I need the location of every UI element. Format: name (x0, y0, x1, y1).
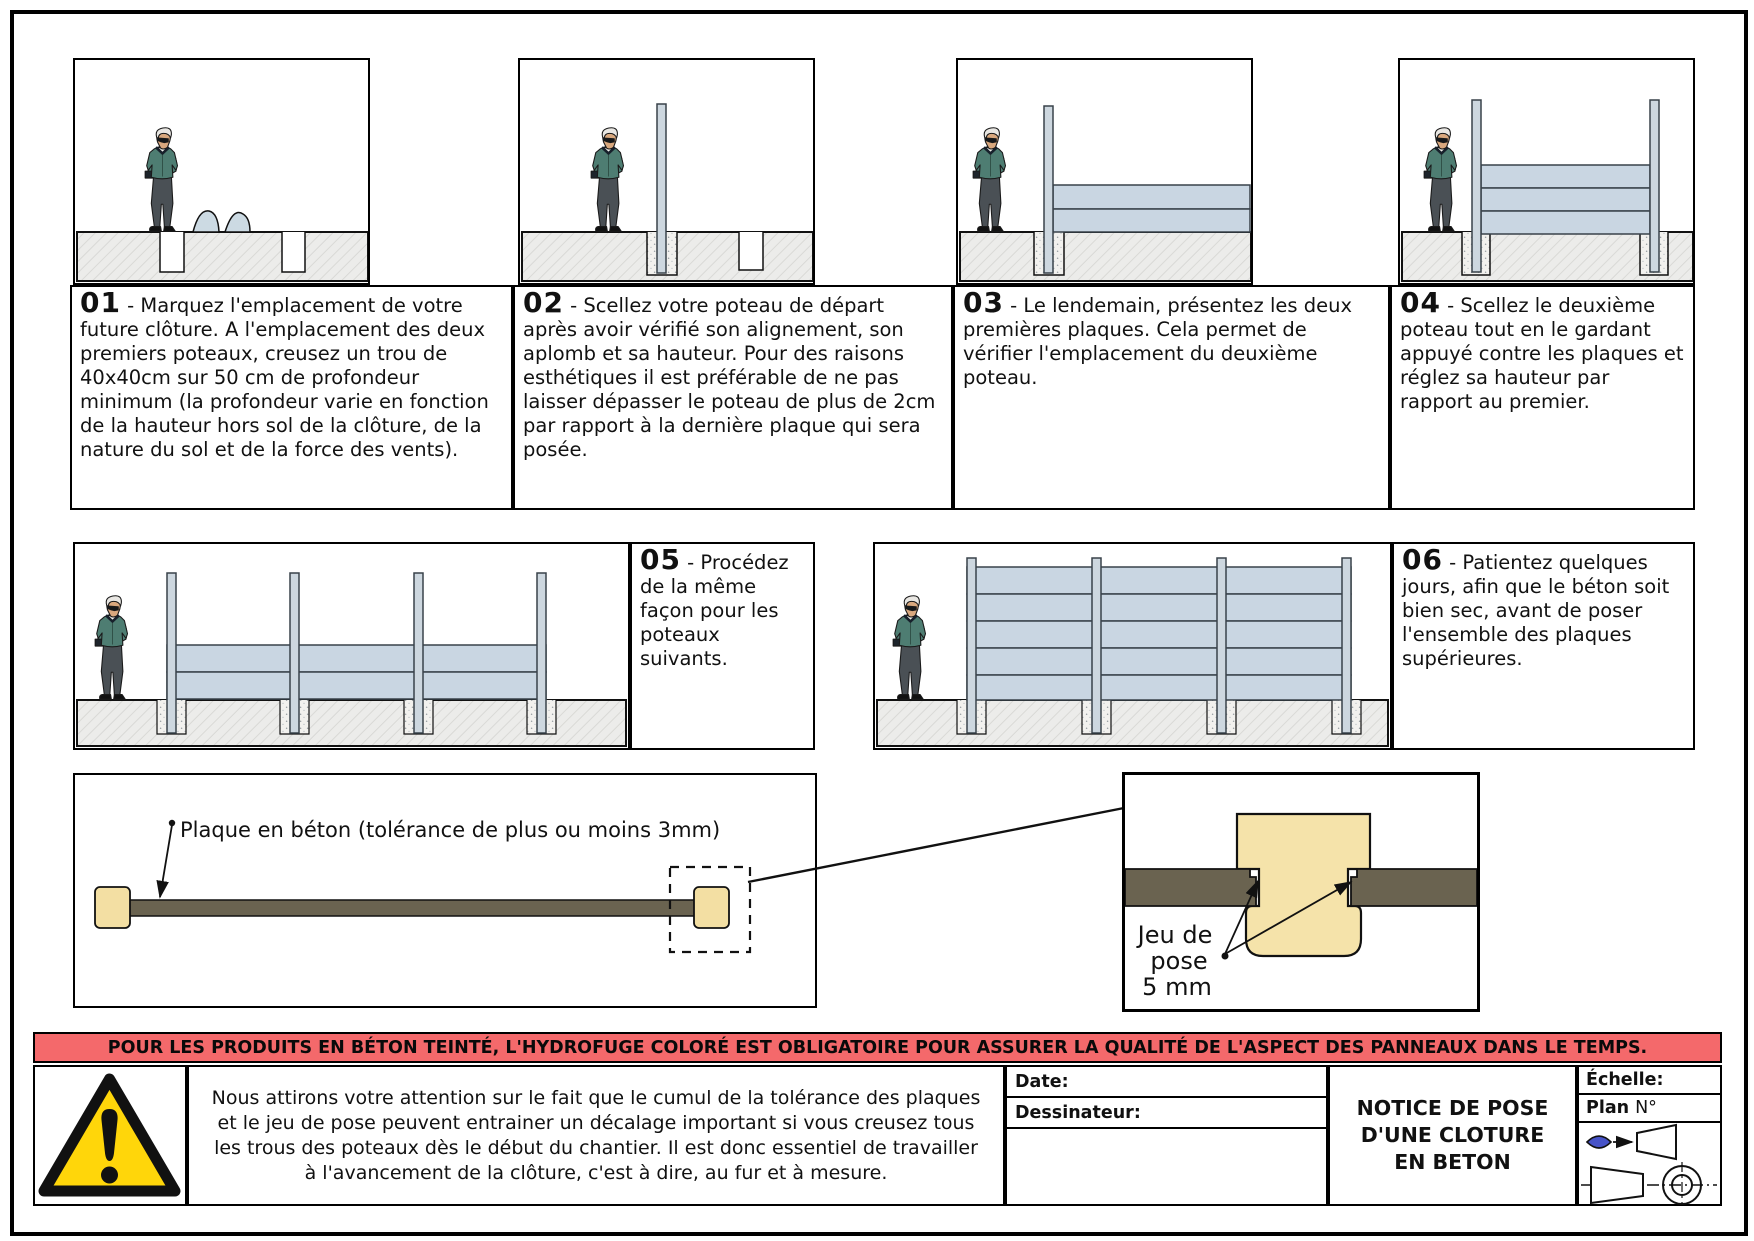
scale-plan-box: Échelle: Plan N° (1577, 1065, 1722, 1206)
plan-number-field: Plan N° (1579, 1095, 1720, 1123)
concrete-plate (967, 594, 1351, 621)
dirt-mound (225, 212, 250, 232)
step-03-illustration (956, 58, 1253, 285)
step-number: 03 (963, 286, 1004, 319)
concrete-plate (1481, 165, 1650, 188)
notice-page: 01 - Marquez l'emplacement de votre futu… (0, 0, 1754, 1241)
scale-field: Échelle: (1579, 1067, 1720, 1095)
fence-post (1217, 558, 1226, 733)
plate-plan-view: Plaque en béton (tolérance de plus ou mo… (73, 773, 817, 1008)
date-label: Date: (1015, 1072, 1069, 1092)
step-01-illustration (73, 58, 370, 285)
plan-label: Plan (1586, 1098, 1629, 1118)
fence-post (1472, 100, 1481, 272)
hydrofuge-warning-banner: POUR LES PRODUITS EN BÉTON TEINTÉ, L'HYD… (33, 1032, 1722, 1063)
drafter-label: Dessinateur: (1015, 1103, 1141, 1123)
joint-detail-view: Jeu de pose 5 mm (1122, 772, 1480, 1012)
concrete-plate (1053, 209, 1250, 232)
plate-label: Plaque en béton (tolérance de plus ou mo… (180, 818, 720, 842)
step-instruction: - Marquez l'emplacement de votre future … (80, 294, 489, 461)
document-title: NOTICE DE POSE D'UNE CLOTURE EN BETON (1357, 1095, 1549, 1176)
concrete-plate (967, 675, 1351, 700)
step-05-text: 05 - Procédez de la même façon pour les … (630, 542, 815, 750)
tolerance-notice-text: Nous attirons votre attention sur le fai… (207, 1086, 985, 1186)
first-angle-projection-icon (1579, 1123, 1719, 1205)
step-number: 01 (80, 286, 121, 319)
plan-number: N° (1635, 1098, 1657, 1118)
plate-end-right (1351, 869, 1477, 906)
gap-label-line1: Jeu de (1136, 921, 1213, 949)
dirt-mound (193, 211, 219, 232)
step-instruction: - Le lendemain, présentez les deux premi… (963, 294, 1352, 389)
plate-end-left (1125, 869, 1256, 906)
tolerance-notice-box: Nous attirons votre attention sur le fai… (187, 1065, 1005, 1206)
step-02-illustration (518, 58, 815, 285)
step-03-text: 03 - Le lendemain, présentez les deux pr… (953, 285, 1390, 510)
banner-text: POUR LES PRODUITS EN BÉTON TEINTÉ, L'HYD… (108, 1038, 1647, 1058)
cone-side-view-icon (1637, 1125, 1676, 1159)
fence-post (1342, 558, 1351, 733)
end-post-left (95, 887, 130, 928)
fence-post (290, 573, 299, 733)
cone-front-view-icon (1591, 1167, 1643, 1203)
step-02-text: 02 - Scellez votre poteau de départ aprè… (513, 285, 953, 510)
step-number: 02 (523, 286, 564, 319)
step-04-illustration (1398, 58, 1695, 285)
step-number: 05 (640, 543, 681, 576)
fence-post (1092, 558, 1101, 733)
step-number: 06 (1402, 543, 1443, 576)
gap-label-line2: pose (1150, 947, 1207, 975)
step-04-text: 04 - Scellez le deuxième poteau tout en … (1390, 285, 1695, 510)
fence-post (537, 573, 546, 733)
fence-post (1044, 106, 1053, 273)
step-01-text: 01 - Marquez l'emplacement de votre futu… (70, 285, 513, 510)
concrete-plate (967, 621, 1351, 648)
step-instruction: - Patientez quelques jours, afin que le … (1402, 551, 1669, 670)
step-06-text: 06 - Patientez quelques jours, afin que … (1392, 542, 1695, 750)
drafter-field: Dessinateur: (1007, 1098, 1326, 1129)
concrete-plate (1481, 211, 1650, 234)
concrete-plate (1481, 188, 1650, 211)
date-drafter-box: Date: Dessinateur: (1005, 1065, 1328, 1206)
step-06-illustration (873, 542, 1392, 750)
date-field: Date: (1007, 1067, 1326, 1098)
concrete-plate (167, 645, 546, 672)
fence-post (167, 573, 176, 733)
step-instruction: - Scellez votre poteau de départ après a… (523, 294, 935, 461)
fence-post (967, 558, 976, 733)
warning-sign-box (33, 1065, 187, 1206)
fence-post (414, 573, 423, 733)
concrete-plate (967, 648, 1351, 675)
eye-icon (1587, 1136, 1611, 1148)
fence-post (1650, 100, 1659, 272)
step-number: 04 (1400, 286, 1441, 319)
end-post-right (694, 887, 729, 928)
warning-triangle-icon (35, 1067, 184, 1203)
concrete-plate (967, 567, 1351, 594)
concrete-plate (1053, 185, 1250, 209)
step-instruction: - Scellez le deuxième poteau tout en le … (1400, 294, 1684, 413)
leader-arrow (160, 825, 172, 897)
concrete-plate-bar (124, 900, 704, 916)
step-05-illustration (73, 542, 630, 750)
title-block: NOTICE DE POSE D'UNE CLOTURE EN BETON (1328, 1065, 1577, 1206)
scale-label: Échelle: (1586, 1070, 1664, 1090)
gap-label-line3: 5 mm (1142, 973, 1212, 1001)
concrete-plate (167, 672, 546, 699)
fence-post (657, 104, 666, 273)
